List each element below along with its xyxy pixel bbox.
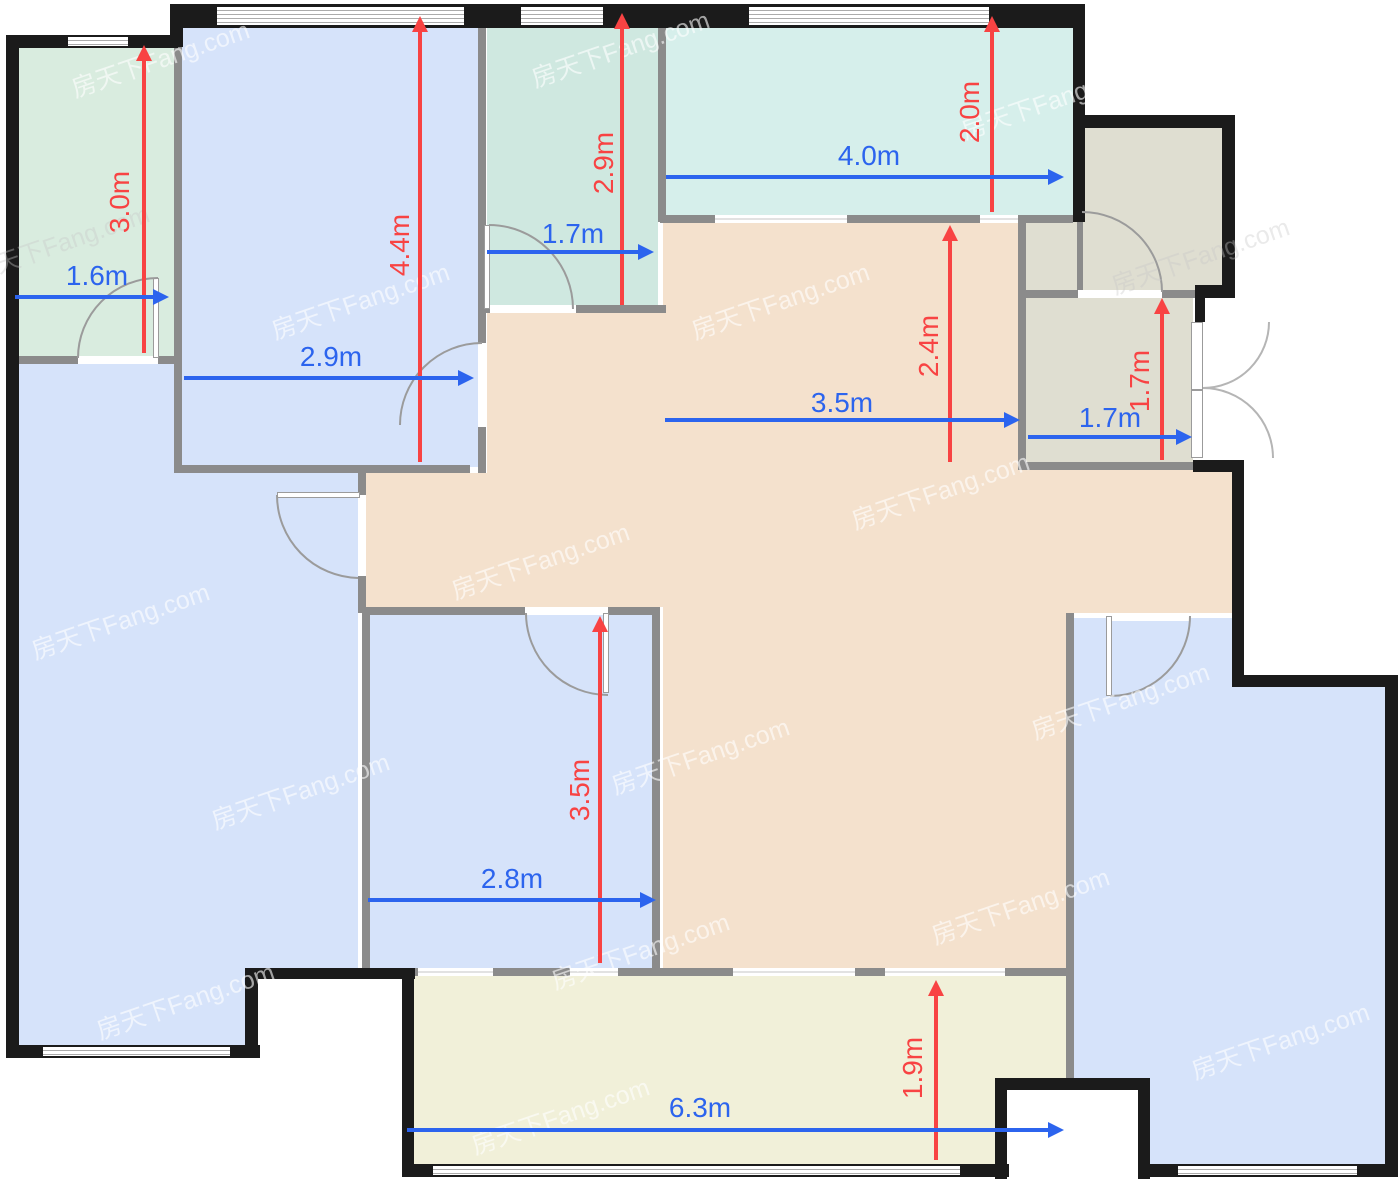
arrow-right-icon [638,244,654,260]
room-hall-right [1070,470,1232,613]
interior-wall [658,8,666,222]
dim-arrow-vertical-1.9m [934,982,938,1160]
exterior-wall [1193,460,1244,472]
arrow-right-icon [1004,412,1020,428]
dim-arrow-horizontal-4.0m [666,175,1062,179]
arrow-up-icon [984,16,1000,32]
arrow-right-icon [1048,169,1064,185]
dim-label-4.0m: 4.0m [838,140,900,172]
interior-wall [1018,215,1073,223]
arrow-shaft [142,53,146,353]
interior-wall [174,47,182,473]
arrow-shaft [598,624,602,963]
arrow-right-icon [640,892,656,908]
exterior-recess [1007,1090,1138,1179]
dim-arrow-horizontal-6.3m [407,1128,1062,1132]
door-opening [358,495,366,576]
arrow-right-icon [153,289,169,305]
interior-wall [478,427,486,473]
interior-wall [158,356,176,364]
interior-wall [1018,462,1198,470]
arrow-up-icon [136,45,152,61]
arrow-up-icon [592,616,608,632]
entry-door-swing-arc [1203,322,1269,388]
arrow-right-icon [1176,429,1192,445]
door-opening [1108,613,1190,621]
sliding-opening [715,215,847,223]
entry-door-swing-arc [1203,388,1273,458]
arrow-shaft [368,898,648,902]
door-opening [478,343,486,427]
dim-label-2.8m: 2.8m [481,863,543,895]
interior-wall [618,968,733,976]
dim-label-3.5m-red: 3.5m [564,759,596,821]
dim-arrow-vertical-2.9m [620,15,624,305]
sliding-opening [570,968,618,976]
dim-label-4.4m: 4.4m [384,214,416,276]
door-opening [490,305,576,313]
sliding-opening [418,968,493,976]
dim-label-1.7m-blue-entry: 1.7m [1079,402,1141,434]
dim-arrow-vertical-4.4m [418,18,422,462]
arrow-shaft [1028,435,1184,439]
dim-label-3.0m: 3.0m [104,171,136,233]
arrow-right-icon [1048,1122,1064,1138]
arrow-up-icon [614,13,630,29]
interior-wall [19,356,78,364]
dim-arrow-horizontal-1.7m [487,250,652,254]
room-bedroom-bottom-right-upper [1073,618,1232,687]
dim-label-6.3m: 6.3m [669,1092,731,1124]
dim-label-1.7m-blue: 1.7m [542,218,604,250]
exterior-wall [1073,8,1085,222]
exterior-wall-right [1385,677,1398,1177]
room-dining-right [1018,470,1070,970]
room-bottom-balcony [414,976,1067,1164]
dim-arrow-vertical-3.0m [142,47,146,353]
room-dining-main [663,222,1018,968]
interior-wall [1018,290,1078,298]
room-top-left-bath [19,47,174,356]
dim-arrow-vertical-2.4m [948,227,952,462]
arrow-shaft [418,24,422,462]
dim-arrow-horizontal-1.7m-entry [1028,435,1190,439]
exterior-wall [1232,462,1244,687]
door-opening [525,607,608,615]
window [43,1047,230,1056]
dim-arrow-horizontal-2.9m [184,376,472,380]
door-leaf [277,492,360,498]
arrow-up-icon [928,980,944,996]
room-top-right-storage [1083,128,1222,290]
dim-arrow-horizontal-2.8m [368,898,654,902]
arrow-shaft [407,1128,1056,1132]
exterior-wall [995,1078,1150,1090]
door-leaf [484,225,490,309]
window [1178,1166,1357,1175]
sliding-opening [980,215,1018,223]
interior-wall [1005,968,1067,976]
dim-label-2.9m-blue: 2.9m [300,341,362,373]
entry-door-leaf [1191,322,1203,390]
interior-wall [1077,215,1083,292]
dim-label-2.9m-red: 2.9m [588,132,620,194]
interior-wall [362,607,525,615]
room-shaft [1026,222,1077,292]
exterior-wall [1222,115,1235,298]
room-top-middle-bath [487,28,658,307]
arrow-shaft [934,988,938,1160]
arrow-up-icon [412,16,428,32]
interior-wall [576,305,666,313]
window [521,7,603,25]
window [68,37,128,46]
arrow-up-icon [942,225,958,241]
room-living-lower [19,968,245,1045]
interior-wall [362,607,370,975]
dim-label-2.4m: 2.4m [913,315,945,377]
sliding-opening [885,968,1005,976]
arrow-shaft [990,24,994,212]
arrow-shaft [948,233,952,462]
arrow-right-icon [458,370,474,386]
interior-wall [1066,613,1074,1083]
arrow-shaft [487,250,646,254]
door-leaf [1106,616,1112,696]
exterior-wall-left [6,35,19,1058]
floor-plan: 房天下Fang.com 房天下Fang.com 房天下Fang.com 房天下F… [0,0,1400,1179]
room-hall-left [366,473,663,607]
dim-label-1.6m: 1.6m [66,260,128,292]
arrow-shaft [620,21,624,305]
dim-arrow-horizontal-1.6m [15,295,167,299]
dim-label-1.9m: 1.9m [897,1037,929,1099]
arrow-shaft [666,175,1056,179]
room-bedroom-top-left [182,28,478,467]
exterior-wall [245,968,415,979]
dim-label-3.5m-blue: 3.5m [811,387,873,419]
exterior-wall [1083,115,1235,128]
dim-label-2.0m: 2.0m [954,81,986,143]
exterior-wall [1232,675,1398,687]
interior-wall [493,968,570,976]
window [433,1166,960,1175]
interior-wall [652,607,660,975]
room-bedroom-bottom-middle [370,613,652,968]
room-living-main [19,473,358,968]
room-top-balcony [666,28,1073,217]
interior-wall [660,215,715,223]
exterior-wall [402,975,414,1177]
dim-arrow-vertical-2.0m [990,18,994,212]
arrow-shaft [184,376,466,380]
sliding-opening [733,968,855,976]
door-opening [1078,290,1162,298]
room-hall-upper [487,312,663,473]
entry-door-leaf [1191,390,1203,458]
dim-arrow-vertical-3.5m [598,618,602,963]
door-opening [78,356,158,364]
exterior-wall [245,968,258,1058]
interior-wall [1018,222,1026,470]
interior-wall [847,215,980,223]
arrow-shaft [15,295,161,299]
interior-wall [855,968,885,976]
arrow-up-icon [1154,298,1170,314]
interior-wall [182,465,470,473]
window [749,7,989,25]
